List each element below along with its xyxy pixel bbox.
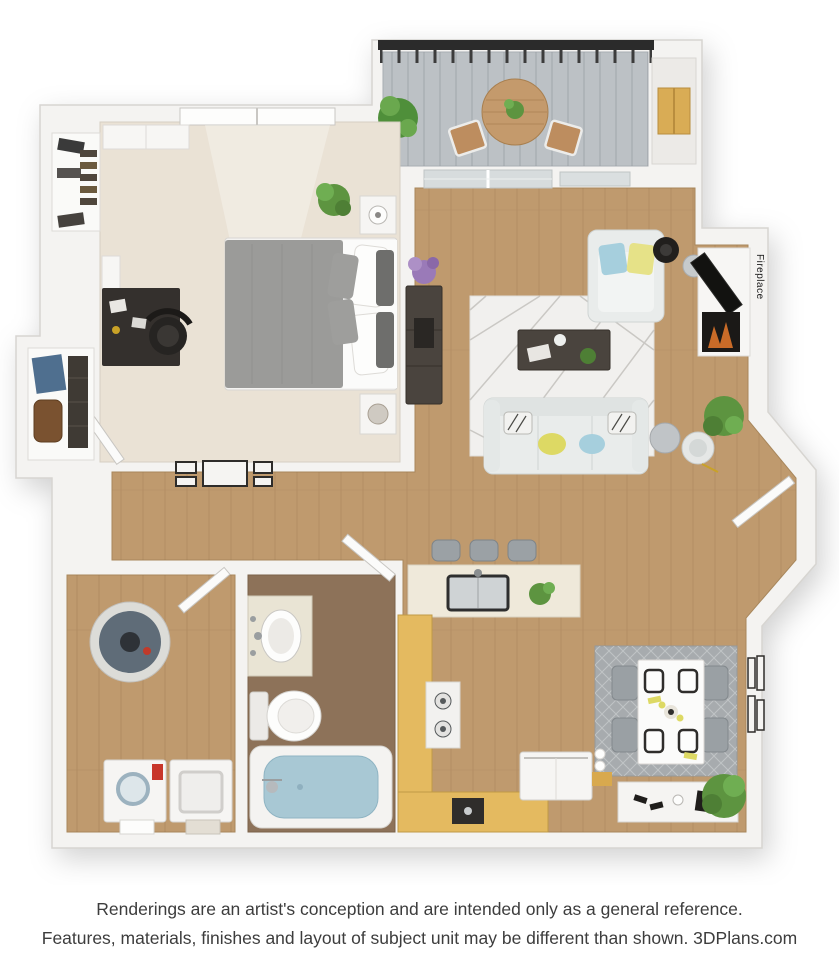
folded-towel xyxy=(186,820,220,834)
bar-stool xyxy=(508,540,536,561)
living-window xyxy=(560,172,630,186)
bar-stool xyxy=(432,540,460,561)
dining-chair xyxy=(612,666,638,700)
refrigerator xyxy=(520,752,592,800)
armchair-pillow-yellow xyxy=(626,243,655,276)
coffee-table xyxy=(518,330,610,370)
closet-basket xyxy=(34,400,62,442)
balcony-railing xyxy=(378,40,654,50)
toilet xyxy=(250,691,321,741)
balcony-balusters xyxy=(380,50,652,63)
floor-lamp xyxy=(653,237,679,263)
dining-chair xyxy=(612,718,638,752)
water-heater xyxy=(90,602,170,682)
vanity xyxy=(248,596,312,676)
sofa-pillow-patterned xyxy=(608,412,636,434)
dryer xyxy=(170,760,232,822)
floorplan-svg: Fireplace xyxy=(0,0,839,885)
sofa xyxy=(484,398,648,474)
stove xyxy=(426,682,460,748)
balcony xyxy=(378,40,696,166)
detergent-bottle xyxy=(152,764,163,780)
tub-faucet xyxy=(266,781,278,793)
disclaimer-line2: Features, materials, finishes and layout… xyxy=(0,924,839,952)
bar-stool xyxy=(470,540,498,561)
dining-chair xyxy=(702,718,728,752)
entry-closet xyxy=(52,133,100,231)
pillow-accent xyxy=(376,312,394,368)
folded-towel xyxy=(120,820,154,834)
sofa-pillow-patterned xyxy=(504,412,532,434)
washer xyxy=(104,760,166,822)
bathroom xyxy=(248,534,395,832)
dining-chair xyxy=(702,666,728,700)
nightstand-top xyxy=(360,196,396,234)
utility-room xyxy=(67,567,235,834)
side-table xyxy=(650,423,680,453)
bedroom xyxy=(83,108,400,464)
floorplan-render: Fireplace xyxy=(0,0,839,885)
flower-vase xyxy=(554,334,566,346)
bed xyxy=(225,238,397,390)
armchair xyxy=(588,230,664,322)
disclaimer-line1: Renderings are an artist's conception an… xyxy=(0,895,839,923)
sofa-pillow-blue xyxy=(579,434,605,454)
bed-duvet xyxy=(225,240,343,388)
floorplan-page: Fireplace xyxy=(0,0,839,960)
sofa-pillow-yellow xyxy=(538,433,566,455)
fireplace-label: Fireplace xyxy=(754,254,765,300)
table-plant xyxy=(580,348,596,364)
media-console xyxy=(406,286,442,404)
bathtub xyxy=(250,746,392,828)
nightstand-bottom xyxy=(360,394,396,434)
hall-closet xyxy=(28,348,94,460)
armchair-pillow-blue xyxy=(598,242,628,275)
hallway-gallery-frames xyxy=(176,461,272,486)
kitchen-sink xyxy=(448,569,508,610)
sliding-door xyxy=(424,170,552,188)
bistro-table xyxy=(482,79,548,145)
disclaimer: Renderings are an artist's conception an… xyxy=(0,895,839,952)
dining-plant xyxy=(702,774,746,818)
closet-blue-item xyxy=(32,354,67,394)
pillow-accent xyxy=(376,250,394,306)
faucet xyxy=(254,632,262,640)
